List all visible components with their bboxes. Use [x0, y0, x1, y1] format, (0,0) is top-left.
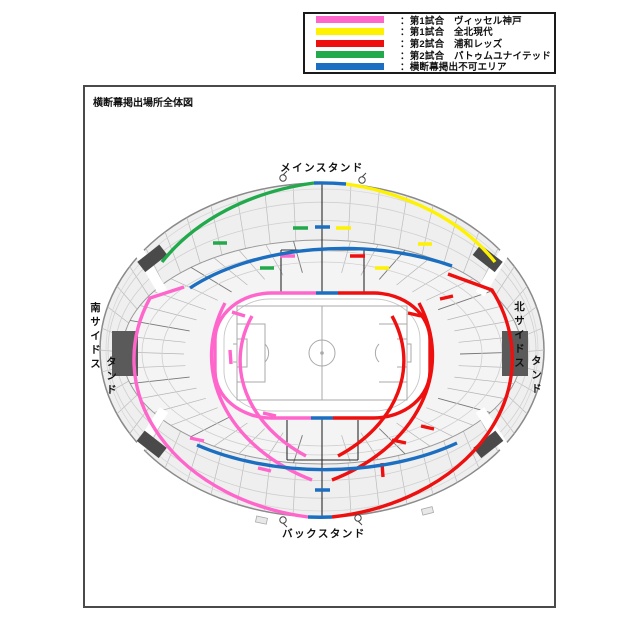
- south-stand-label-line1: 南サイドス: [88, 302, 103, 372]
- south-stand-label-line2: タンド: [104, 356, 119, 398]
- rim-structure: [255, 516, 267, 524]
- rim-structure: [421, 507, 433, 515]
- zone-blue-rim-top: [314, 183, 346, 184]
- main-stand-label: メインスタンド: [280, 160, 364, 175]
- north-stand-label-line1: 北サイドス: [512, 301, 527, 371]
- north-stand-label-line2: タンド: [529, 355, 544, 397]
- back-stand-label: バックスタンド: [282, 526, 366, 541]
